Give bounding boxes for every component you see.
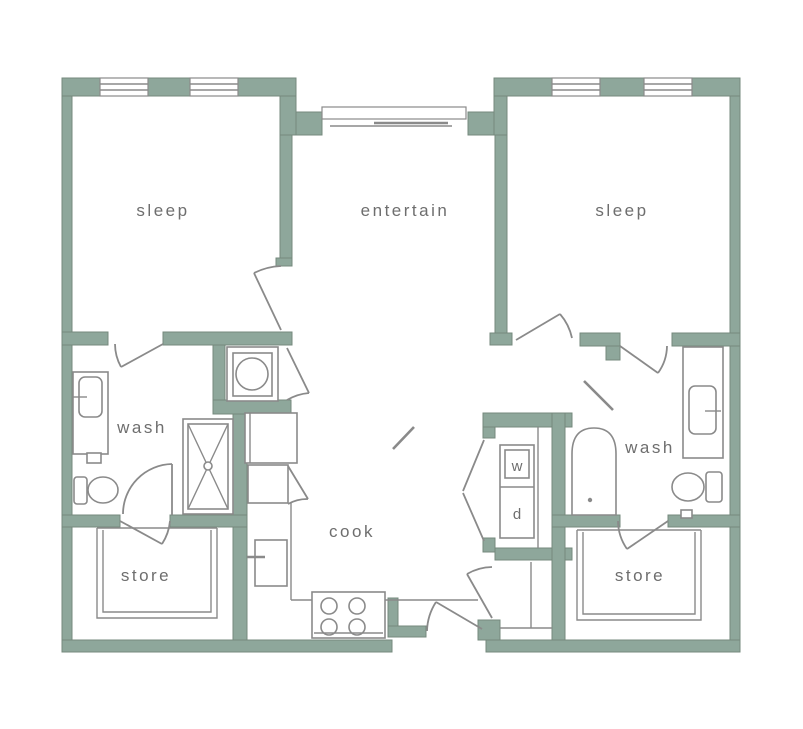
wall-segment xyxy=(296,112,322,135)
fixtures xyxy=(73,347,723,638)
wall-segment xyxy=(672,333,740,346)
angled-wall xyxy=(393,427,414,449)
vanity-sink-icon xyxy=(683,347,723,458)
angled-wall xyxy=(584,381,613,410)
room-label-cook: cook xyxy=(329,522,375,541)
door-cabinet xyxy=(288,466,308,504)
kitchen-counter xyxy=(291,502,478,600)
washing-machine-icon xyxy=(227,347,278,401)
wall-segment xyxy=(213,345,225,402)
toilet-icon xyxy=(672,472,722,518)
window xyxy=(552,78,600,96)
window xyxy=(100,78,148,96)
wall-segment xyxy=(552,515,620,527)
door-sleep-left xyxy=(254,266,281,330)
bathtub-icon xyxy=(572,428,616,515)
wall-segment xyxy=(490,333,512,345)
window xyxy=(644,78,692,96)
wall-segment xyxy=(62,640,392,652)
sliding-glass-door-icon xyxy=(322,107,466,126)
wall-segment xyxy=(388,626,426,637)
room-label-sleep-left: sleep xyxy=(136,201,189,220)
closet-shelving-icon xyxy=(500,562,552,628)
wall-segment xyxy=(170,515,247,527)
wall-segment xyxy=(388,598,398,628)
door-wash-right xyxy=(620,346,667,373)
wall-segment xyxy=(163,332,292,345)
room-label-store-right: store xyxy=(615,566,665,585)
wall-segment xyxy=(280,135,292,264)
wall-segment xyxy=(483,538,495,552)
wall-segment xyxy=(62,515,120,527)
window xyxy=(190,78,238,96)
wall-segment xyxy=(62,78,72,652)
wall-segment xyxy=(213,400,291,414)
dryer-label: d xyxy=(513,506,521,523)
wall-segment xyxy=(606,346,620,360)
floorplan-page: sleep entertain sleep wash cook wash sto… xyxy=(0,0,803,729)
wall-segment xyxy=(494,96,507,135)
wall-segment xyxy=(486,640,740,652)
shower-icon xyxy=(183,419,233,514)
door-wash-left-inner xyxy=(123,464,172,515)
wall-segment xyxy=(668,515,740,527)
door-store-right xyxy=(618,521,668,549)
door-wash-left xyxy=(115,344,163,367)
room-label-wash-right: wash xyxy=(624,438,675,457)
wall-segment xyxy=(233,527,247,640)
wall-segment xyxy=(280,96,296,135)
room-label-wash-left: wash xyxy=(116,418,167,437)
washer-label: w xyxy=(511,458,523,475)
cabinet-icon xyxy=(248,465,288,503)
door-sleep-right xyxy=(516,314,572,340)
bifold-door-laundry xyxy=(463,440,484,541)
wall-segment xyxy=(495,135,507,333)
door-entry xyxy=(427,602,482,631)
refrigerator-icon xyxy=(245,413,297,463)
wall-segment xyxy=(580,333,620,346)
wall-segment xyxy=(62,78,296,96)
wall-segment xyxy=(730,96,740,652)
room-label-entertain: entertain xyxy=(361,201,450,220)
toilet-icon xyxy=(74,477,118,504)
door-coat-closet xyxy=(467,567,492,618)
wall-segment xyxy=(276,258,292,266)
door-store-left xyxy=(120,521,170,544)
door-washer-closet xyxy=(287,348,309,400)
wall-segment xyxy=(483,427,495,438)
range-stove-icon xyxy=(312,592,385,638)
wall-segment xyxy=(478,620,500,640)
room-label-store-left: store xyxy=(121,566,171,585)
wall-segment xyxy=(62,332,108,345)
room-label-sleep-right: sleep xyxy=(595,201,648,220)
washer-dryer-stack-icon xyxy=(500,427,538,548)
floorplan-svg: sleep entertain sleep wash cook wash sto… xyxy=(0,0,803,729)
wall-segment xyxy=(494,78,740,96)
kitchen-sink-icon xyxy=(247,540,287,586)
vanity-sink-icon xyxy=(73,372,108,463)
wall-segment xyxy=(468,112,494,135)
